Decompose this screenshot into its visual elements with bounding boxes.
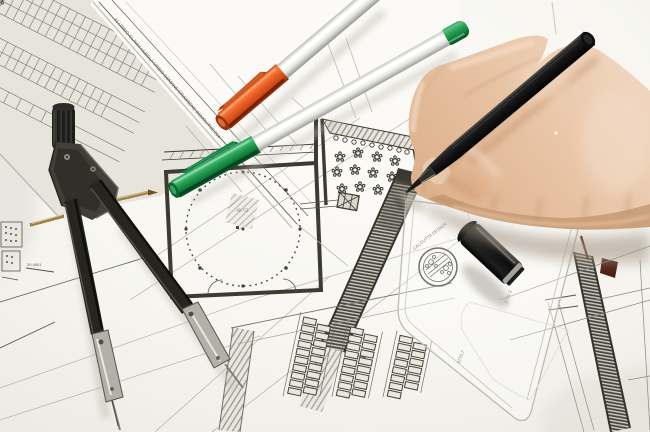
svg-text:30 4601: 30 4601	[27, 262, 42, 267]
